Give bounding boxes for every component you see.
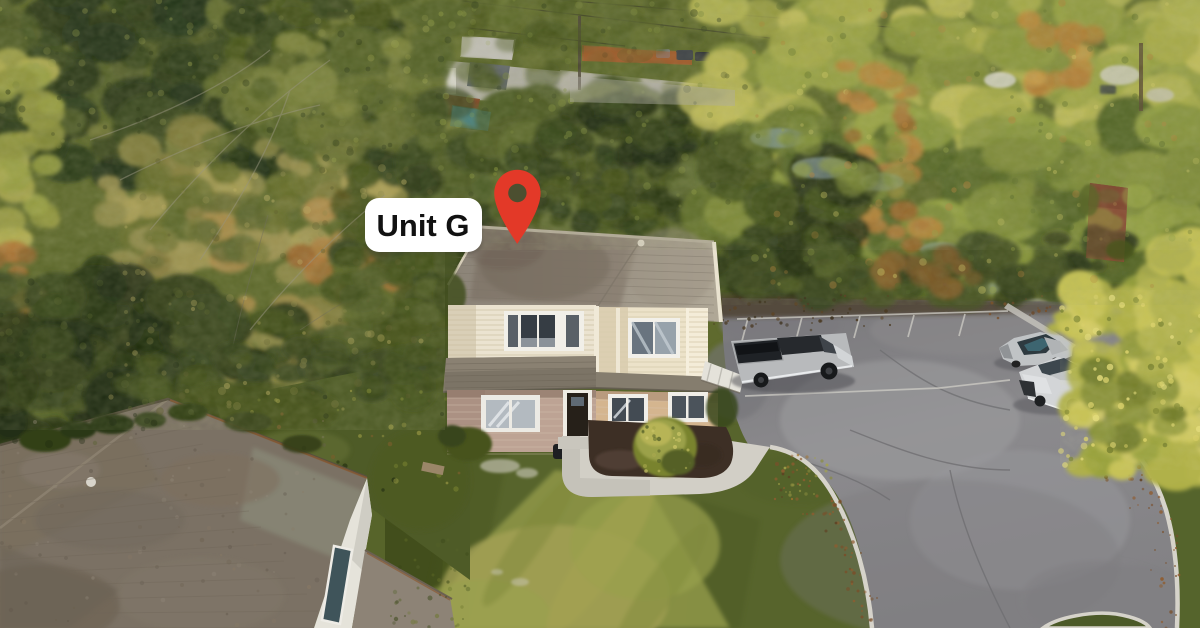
svg-text:Unit G: Unit G xyxy=(377,208,470,243)
